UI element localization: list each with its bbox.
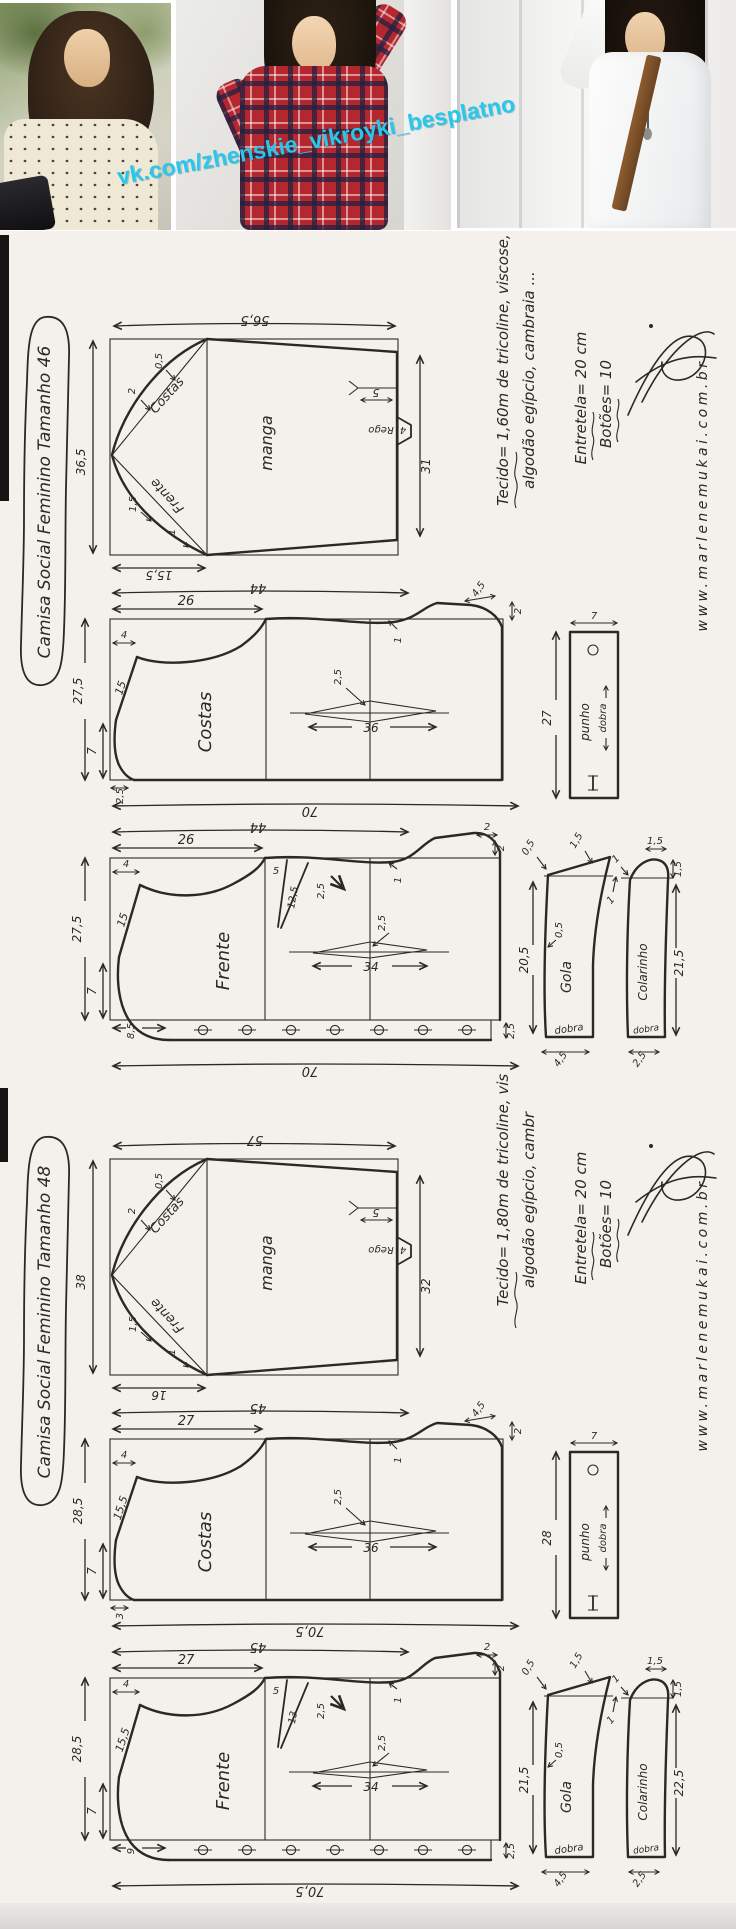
stand-name: Colarinho: [636, 943, 650, 1000]
stand-length-dim: 21,5: [672, 950, 686, 977]
stand-mark-dim: 1,5: [647, 836, 663, 847]
collar-name: Gola: [559, 961, 575, 993]
front-ease-dim: 1,5: [128, 496, 139, 512]
back-hem-edge: [134, 627, 502, 780]
dim-arrow: [613, 877, 616, 892]
pattern-section-size-48: Camisa Social Feminino Tamanho 48 57 38 …: [0, 1050, 736, 1900]
stand-name: Colarinho: [636, 1763, 650, 1820]
front-corner-dim: 2: [496, 845, 507, 851]
dim-arrow: [548, 940, 556, 947]
neck-dart-w-dim: 2,5: [316, 883, 327, 899]
front-ease-dim: 1: [167, 1349, 178, 1355]
photo-anchor-print-shirt: [0, 3, 171, 230]
sleeve-capwidth-dim: 16: [151, 1388, 167, 1402]
fabric-note: Tecido= 1,80m de tricoline, vis: [494, 1074, 512, 1307]
website-text: www.marlenemukai.com.br: [695, 359, 711, 632]
dim-arrow: [331, 1696, 344, 1709]
size-label-text: Camisa Social Feminino Tamanho 48: [35, 1166, 55, 1479]
sleeve-frame: [110, 1159, 398, 1375]
stand-mark-dim: 1,5: [673, 861, 684, 877]
back-side-seam: [266, 1423, 502, 1447]
back-corner-dim: 2: [513, 608, 524, 614]
size-label-text: Camisa Social Feminino Tamanho 46: [35, 346, 55, 659]
stand-mark-dim: 1,5: [647, 1656, 663, 1667]
front-name: Frente: [213, 932, 234, 990]
underline-squiggle: [592, 412, 594, 460]
front-frame: [110, 858, 500, 1020]
band-width-dim: 2,5: [506, 1843, 517, 1859]
dim-arrow: [346, 688, 365, 705]
camera: [0, 175, 56, 230]
interfacing-note: Entretela= 20 cm: [572, 1152, 590, 1285]
sleeve-cap-curve: [112, 1159, 207, 1375]
dart-width-dim: 34: [363, 1780, 378, 1794]
notch-dim: 4: [400, 1244, 406, 1255]
buttons-note: Botões= 10: [597, 360, 615, 448]
collar-mark-dim: 1,5: [568, 831, 585, 850]
collar-mark-dim: 0,5: [520, 838, 537, 857]
photo-strip: vk.com/zhenskie_vikroyki_besplatno: [0, 0, 736, 231]
dart-width-dim: 36: [363, 721, 379, 735]
dim-arrow: [166, 1190, 175, 1200]
woman-face: [64, 29, 110, 87]
cuff-button: [588, 1465, 598, 1475]
back-side-seam: [266, 603, 502, 627]
cuff-piece: 7 28 punho dobra: [540, 1431, 618, 1618]
sleeve-right-dim: 31: [419, 458, 433, 473]
underline-squiggle: [617, 1219, 619, 1262]
back-neckdrop-dim: 4: [121, 1450, 127, 1461]
collar-outline: [545, 1677, 610, 1857]
cuff-length-dim: 28: [540, 1530, 554, 1546]
back-name: Costas: [195, 692, 216, 752]
back-hemside-dim: 7: [85, 747, 99, 755]
front-wave-dim: 1: [393, 877, 404, 883]
back-length-dim: 27,5: [71, 678, 85, 705]
scan-edge-bar: [0, 1088, 8, 1162]
collar-piece: 0,5 1,5 1 0,5 20,5 Gola dobra 4,5: [517, 831, 617, 1069]
back-neck-curve: [115, 720, 134, 780]
stand-mark-dim: 1,5: [673, 1681, 684, 1697]
collar-name: Gola: [559, 1781, 575, 1813]
back-wave-dim: 1: [393, 1457, 404, 1463]
front-hemside-dim: 7: [85, 1807, 99, 1815]
front-width-dim: 44: [250, 819, 267, 834]
size-label: Camisa Social Feminino Tamanho 48: [21, 1137, 69, 1505]
dart-width-dim: 34: [363, 960, 378, 974]
front-wave-dim: 1: [393, 1697, 404, 1703]
dim-arrow: [389, 863, 397, 869]
back-armhole: [137, 1439, 266, 1483]
neck-seg-dim: 5: [273, 866, 279, 877]
front-halfwidth-dim: 27: [178, 1653, 195, 1668]
dart-depth-dim: 2,5: [333, 1489, 344, 1505]
sleeve-piece: 56,5 36,5 31 15,5 5 Rego 4 Costas 0,5 2 …: [74, 312, 433, 582]
neck-dart-w-dim: 2,5: [316, 1703, 327, 1719]
front-piece: 44 26 4 15 2,5 8,5 5 12,5 2,5: [70, 819, 518, 1078]
collar-mark-dim: 0,5: [554, 922, 565, 938]
back-shoulder-dim: 15: [112, 679, 129, 696]
front-length-dim: 27,5: [70, 916, 84, 943]
fabric-note: algodão egípcio, cambraia ...: [520, 271, 538, 489]
back-corner-dim: 4,5: [470, 580, 488, 599]
front-ease-dim: 1: [167, 529, 178, 535]
sleeve-body-outline: [207, 1159, 397, 1375]
neck-dart-len-dim: 12,5: [286, 886, 301, 910]
dim-arrow: [537, 1677, 546, 1689]
back-width-dim: 44: [250, 580, 267, 595]
back-corner-dim: 4,5: [470, 1400, 488, 1419]
collar-length-dim: 20,5: [517, 947, 531, 974]
fold-label: dobra: [554, 1022, 584, 1037]
buttonholes: [194, 1845, 476, 1854]
dim-arrow: [585, 851, 592, 863]
fabric-note: Tecido= 1,60m de tricoline, viscose,: [494, 234, 512, 506]
front-armhole: [140, 1678, 265, 1715]
back-halfwidth-dim: 26: [178, 594, 195, 609]
back-width-dim: 45: [250, 1400, 267, 1415]
back-neckwidth-dim: 3: [115, 1613, 126, 1619]
back-length-dim: 28,5: [71, 1498, 85, 1525]
notch-dim: 4: [400, 424, 406, 435]
front-hemside-dim: 7: [85, 987, 99, 995]
sleeve-width-dim: 56,5: [241, 312, 270, 327]
notes: Tecido= 1,80m de tricoline, vis algodão …: [494, 1074, 716, 1452]
size-label: Camisa Social Feminino Tamanho 46: [21, 317, 69, 685]
underline-squiggle: [515, 452, 517, 508]
back-neckwidth-dim: 2,5: [115, 788, 126, 804]
collar-stand-piece: 1,5 1,5 1 22,5 Colarinho dobra 2,5: [610, 1656, 686, 1889]
scan-bottom-strip: [0, 1903, 736, 1929]
front-hemtotal-dim: 70,5: [296, 1883, 325, 1898]
cuff-piece: 7 27 punho dobra: [540, 611, 618, 798]
front-ease-dim: 1,5: [128, 1316, 139, 1332]
fold-label: dobra: [598, 703, 609, 732]
collar-stand-piece: 1,5 1,5 1 21,5 Colarinho dobra 2,5: [610, 836, 686, 1069]
underline-squiggle: [592, 1232, 594, 1280]
sleeve-right-dim: 32: [419, 1278, 433, 1293]
back-hem-edge: [134, 1447, 502, 1600]
collar-mark-dim: 1: [605, 894, 618, 906]
dim-arrow: [166, 370, 175, 380]
back-wave-dim: 1: [393, 637, 404, 643]
back-neckdrop-dim: 4: [121, 630, 127, 641]
front-corner-dim: 2: [484, 1642, 490, 1653]
buttons-note: Botões= 10: [597, 1180, 615, 1268]
back-frame: [110, 619, 503, 780]
notch-label: Rego: [368, 424, 394, 435]
cuff-length-dim: 27: [540, 710, 554, 726]
sleeve-body-outline: [207, 339, 397, 555]
fold-label: dobra: [598, 1523, 609, 1552]
sleeve-left-dim: 36,5: [74, 449, 88, 476]
dim-arrow: [548, 1760, 556, 1767]
stand-mark-dim: 1: [610, 1673, 622, 1685]
back-hemside-dim: 7: [85, 1567, 99, 1575]
cuff-name: punho: [578, 1523, 592, 1562]
back-ease-dim: 0,5: [154, 1173, 165, 1189]
dim-arrow: [613, 1697, 616, 1712]
collar-mark-dim: 1,5: [568, 1651, 585, 1670]
pattern-drawing: Camisa Social Feminino Tamanho 46 56,5 3…: [0, 230, 736, 1080]
dim-arrow: [621, 1687, 628, 1695]
sleeve-frame: [110, 339, 398, 555]
front-width-dim: 45: [250, 1639, 267, 1654]
website-text: www.marlenemukai.com.br: [695, 1179, 711, 1452]
neck-dart-len-dim: 13: [287, 1710, 300, 1724]
cuff-width-dim: 7: [591, 611, 598, 622]
back-ease-dim: 2: [127, 1208, 138, 1214]
back-frame: [110, 1439, 503, 1600]
back-ease-dim: 0,5: [154, 353, 165, 369]
dart-depth-dim: 2,5: [377, 915, 388, 931]
front-neckdrop-dim: 4: [123, 859, 129, 870]
front-halfwidth-dim: 26: [178, 833, 195, 848]
dim-arrow: [585, 1671, 592, 1683]
fabric-note: algodão egípcio, cambr: [520, 1111, 538, 1288]
back-hemtotal-dim: 70: [302, 803, 319, 818]
dart-depth-dim: 2,5: [333, 669, 344, 685]
pattern-section-size-46: Camisa Social Feminino Tamanho 46 56,5 3…: [0, 230, 736, 1080]
underline-squiggle: [617, 399, 619, 442]
sleeve-name: manga: [257, 1235, 276, 1291]
cuff-button: [588, 645, 598, 655]
pattern-drawing: Camisa Social Feminino Tamanho 48 57 38 …: [0, 1050, 736, 1900]
collar-piece: 0,5 1,5 1 0,5 21,5 Gola dobra 4,5: [517, 1651, 617, 1889]
underline-squiggle: [515, 1272, 517, 1328]
dart-width-dim: 36: [363, 1541, 379, 1555]
fold-label: dobra: [632, 1023, 659, 1037]
back-halfwidth-dim: 27: [178, 1414, 195, 1429]
dart-depth-dim: 2,5: [377, 1735, 388, 1751]
sleeve-back-label: Costas: [147, 374, 188, 417]
sleeve-piece: 57 38 32 16 5 Rego 4 Costas 0,5 2 Frente…: [74, 1132, 433, 1402]
collar-length-dim: 21,5: [517, 1767, 531, 1794]
cuff-width-dim: 7: [591, 1431, 598, 1442]
dim-arrow: [537, 857, 546, 869]
dim-arrow: [621, 867, 628, 875]
notch-label: Rego: [368, 1244, 394, 1255]
sleeve-front-label: Frente: [148, 1295, 188, 1336]
fold-label: dobra: [554, 1842, 584, 1857]
scan-edge-bar: [0, 235, 9, 501]
stand-length-dim: 22,5: [672, 1770, 686, 1797]
slit-dim: 5: [373, 1206, 380, 1219]
front-name: Frente: [213, 1752, 234, 1810]
front-neckdrop-dim: 4: [123, 1679, 129, 1690]
collar-mark-dim: 0,5: [554, 1742, 565, 1758]
back-corner-dim: 2: [513, 1428, 524, 1434]
collar-mark-dim: 0,5: [520, 1658, 537, 1677]
back-ease-dim: 2: [127, 388, 138, 394]
back-armhole: [137, 619, 266, 663]
front-corner-dim: 2: [484, 822, 490, 833]
dim-arrow: [389, 1683, 397, 1689]
back-piece: 44 26 4,5 2 1 2,5 36 Costas 27,5 7 4 15 …: [71, 580, 524, 818]
front-armhole: [140, 858, 265, 895]
stand-width-dim: 2,5: [631, 1870, 649, 1889]
notes: Tecido= 1,60m de tricoline, viscose, alg…: [494, 234, 716, 631]
dim-arrow: [346, 1508, 365, 1525]
back-piece: 45 27 4,5 2 1 2,5 36 Costas 28,5 7 4 15,…: [71, 1400, 524, 1638]
slit-dim: 5: [373, 386, 380, 399]
cuff-name: punho: [578, 703, 592, 742]
front-corner-dim: 2: [496, 1665, 507, 1671]
neck-seg-dim: 5: [273, 1686, 279, 1697]
woman-face: [292, 16, 336, 72]
fold-label: dobra: [632, 1843, 659, 1857]
sleeve-name: manga: [257, 415, 276, 471]
placket-dim: 8,5: [126, 1023, 137, 1039]
sleeve-cap-curve: [112, 339, 207, 555]
interfacing-note: Entretela= 20 cm: [572, 332, 590, 465]
sleeve-back-label: Costas: [147, 1194, 188, 1237]
sleeve-front-label: Frente: [148, 475, 188, 516]
collar-mark-dim: 1: [605, 1714, 618, 1726]
buttonholes: [194, 1025, 476, 1034]
sleeve-capwidth-dim: 15,5: [146, 568, 173, 582]
collar-outline: [545, 857, 610, 1037]
front-length-dim: 28,5: [70, 1736, 84, 1763]
sleeve-width-dim: 57: [246, 1132, 263, 1147]
stand-mark-dim: 1: [610, 853, 622, 865]
front-frame: [110, 1678, 500, 1840]
pattern-sheet-page: vk.com/zhenskie_vikroyki_besplatno Camis…: [0, 0, 736, 1929]
placket-dim: 9: [126, 1848, 137, 1854]
back-neck-curve: [115, 1540, 134, 1600]
front-piece: 45 27 4 15,5 2,5 9 5 13 2,5: [70, 1639, 518, 1898]
collar-width-dim: 4,5: [552, 1870, 570, 1889]
sleeve-left-dim: 38: [74, 1274, 88, 1290]
back-name: Costas: [195, 1512, 216, 1572]
back-hemtotal-dim: 70,5: [296, 1623, 325, 1638]
dim-arrow: [331, 876, 344, 889]
band-width-dim: 2,5: [506, 1023, 517, 1039]
